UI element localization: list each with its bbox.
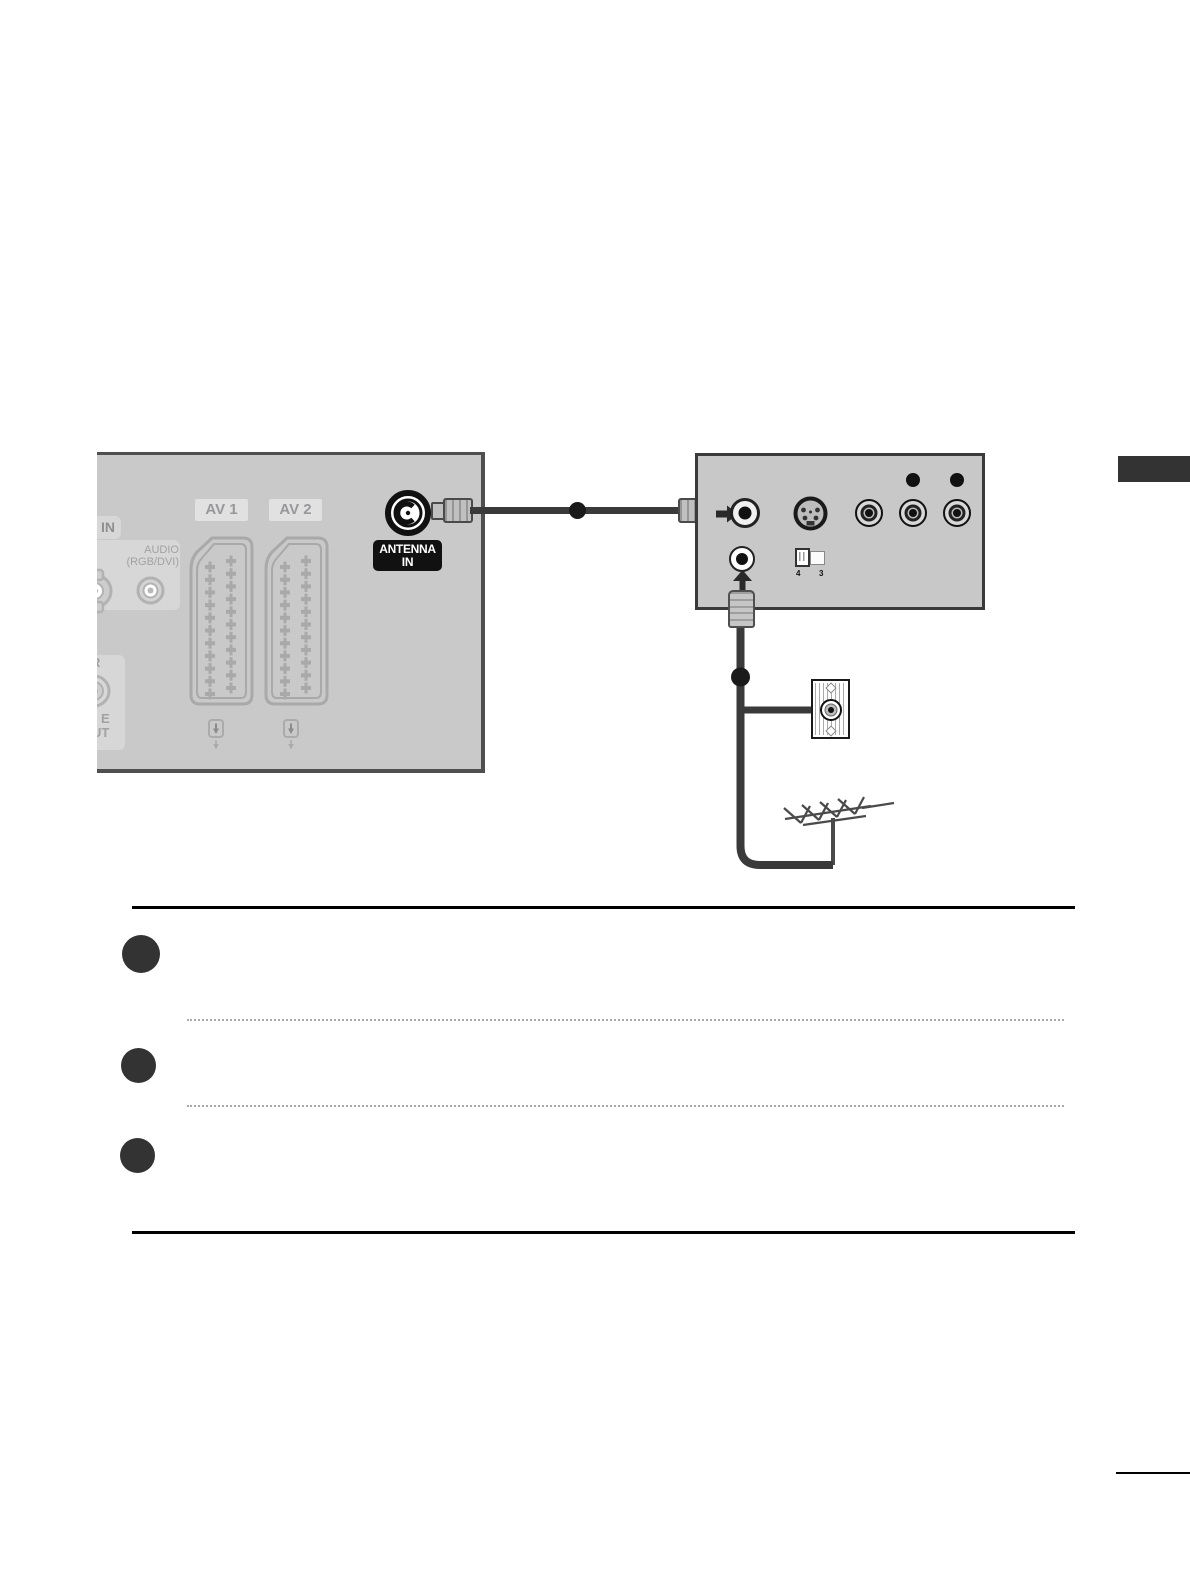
antenna-cable-run	[690, 598, 905, 888]
rf-plug-left-body	[443, 498, 473, 523]
step-marker-1	[122, 935, 160, 973]
manual-page: B IN AUDIO (RGB/DVI) R E UT	[0, 0, 1190, 1586]
av1-label: AV 1	[195, 499, 248, 521]
outlet-coax-jack	[820, 699, 842, 721]
audio-jack-icon	[136, 576, 165, 605]
channel-switch-knob	[795, 548, 810, 567]
jack-marker-dot-right	[950, 473, 964, 487]
antenna-in-label: ANTENNA IN	[373, 540, 442, 571]
step-divider-1	[187, 1019, 1064, 1021]
switch-label-4: 4	[796, 569, 800, 578]
tv-back-panel: B IN AUDIO (RGB/DVI) R E UT	[97, 452, 485, 773]
rca-jack-audio-l	[899, 499, 927, 527]
antenna-cable-plug	[728, 590, 755, 628]
vcr-antenna-in-jack	[730, 498, 760, 528]
vcr-antenna-out-jack	[729, 546, 755, 572]
rgb-port-icon	[97, 567, 119, 615]
left-fragment-r: R	[97, 655, 100, 670]
rca-jack-audio-r	[943, 499, 971, 527]
left-fragment-ut: UT	[97, 725, 109, 740]
scart-av2-icon	[261, 535, 331, 707]
page-footer-rule	[1116, 1472, 1190, 1474]
step-marker-2	[121, 1048, 156, 1083]
antenna-in-jack-icon	[384, 489, 432, 537]
audio-rgb-dvi-label: AUDIO (RGB/DVI)	[103, 544, 179, 568]
jack-marker-dot-left	[906, 473, 920, 487]
step-divider-2	[187, 1105, 1064, 1107]
cable-junction-dot	[731, 668, 750, 687]
s-video-port-icon	[793, 496, 828, 531]
rf-cable-marker-dot	[569, 502, 586, 519]
step-marker-3	[120, 1138, 155, 1173]
section-top-rule	[132, 906, 1075, 909]
output-jack-icon	[97, 673, 112, 709]
channel-switch-plate	[810, 551, 825, 565]
scart-av1-insert-icon	[206, 719, 226, 751]
left-fragment-e: E	[101, 711, 110, 726]
tv-aerial-icon	[784, 797, 894, 825]
av2-label: AV 2	[269, 499, 322, 521]
rgb-in-label-fragment: B IN	[97, 519, 115, 535]
rca-jack-video	[855, 499, 883, 527]
vcr-back-panel: 4 3	[695, 453, 985, 610]
scart-av2-insert-icon	[281, 719, 301, 751]
switch-label-3: 3	[819, 569, 823, 578]
scart-av1-icon	[186, 535, 256, 707]
section-bottom-rule	[132, 1231, 1075, 1234]
chapter-side-tab	[1118, 456, 1190, 482]
antenna-wall-outlet	[811, 679, 850, 739]
